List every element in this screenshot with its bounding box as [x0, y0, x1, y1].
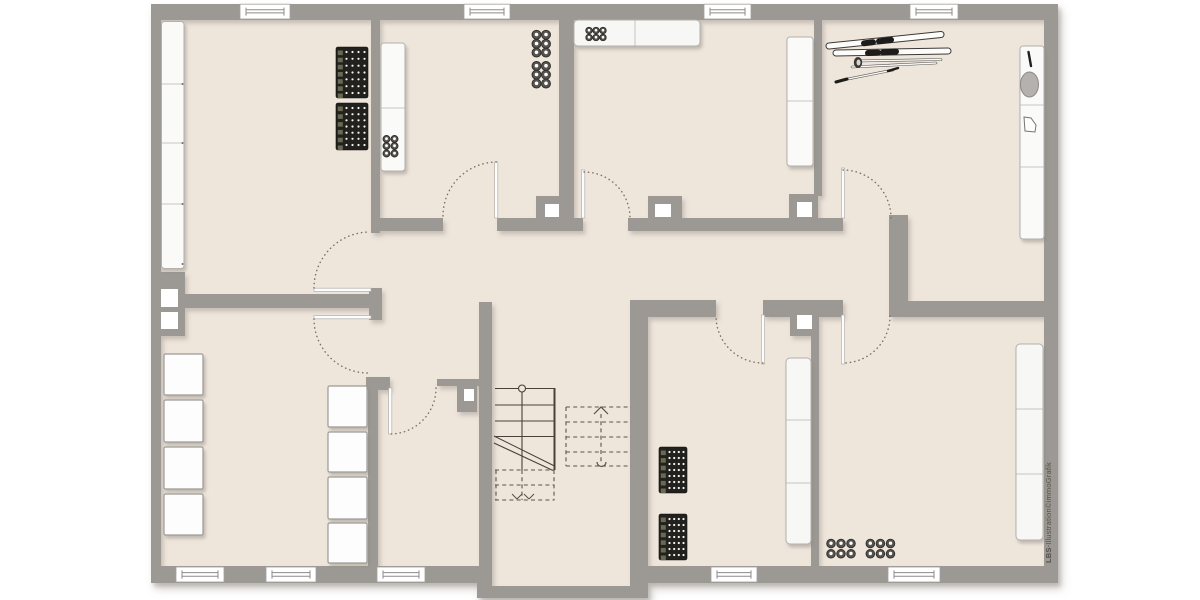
- svg-text:LBS-Illustration©immoGrafik: LBS-Illustration©immoGrafik: [1044, 462, 1053, 563]
